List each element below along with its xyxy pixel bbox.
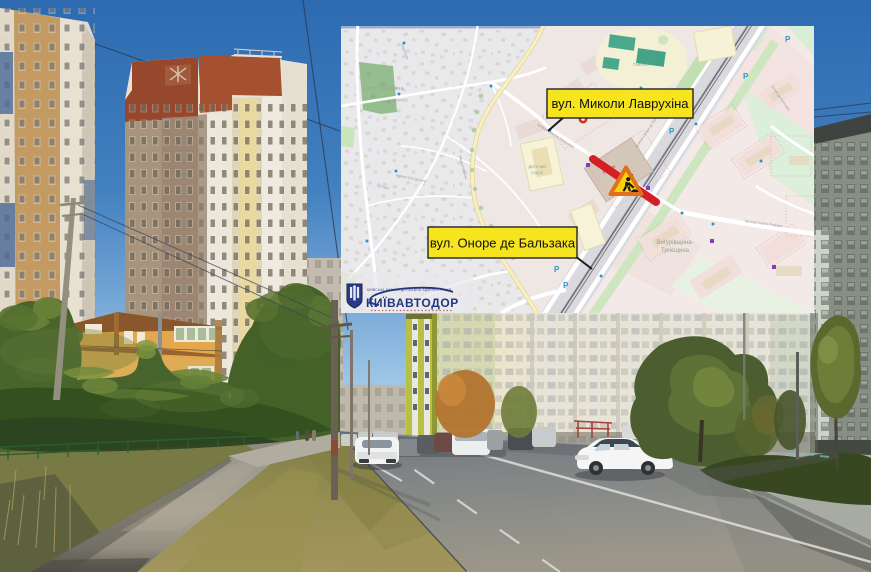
svg-text:вул. Оноре де Бальзака: вул. Оноре де Бальзака — [430, 236, 576, 251]
svg-text:Гімназія: Гімназія — [633, 62, 649, 67]
svg-text:КИЇВАВТОДОР: КИЇВАВТОДОР — [366, 295, 459, 310]
svg-text:P: P — [563, 281, 569, 290]
svg-text:P: P — [743, 72, 749, 81]
svg-text:Село Троєщина: Село Троєщина — [363, 86, 404, 92]
svg-text:Троєщина: Троєщина — [661, 248, 690, 254]
svg-text:Дитячий: Дитячий — [528, 163, 546, 169]
svg-text:P: P — [554, 265, 560, 274]
svg-text:Вигурівщина-: Вигурівщина- — [656, 240, 693, 246]
svg-text:вул. Миколи Лаврухіна: вул. Миколи Лаврухіна — [551, 96, 689, 111]
svg-text:садок: садок — [531, 170, 543, 175]
svg-text:P: P — [669, 127, 675, 136]
svg-text:P: P — [785, 35, 791, 44]
